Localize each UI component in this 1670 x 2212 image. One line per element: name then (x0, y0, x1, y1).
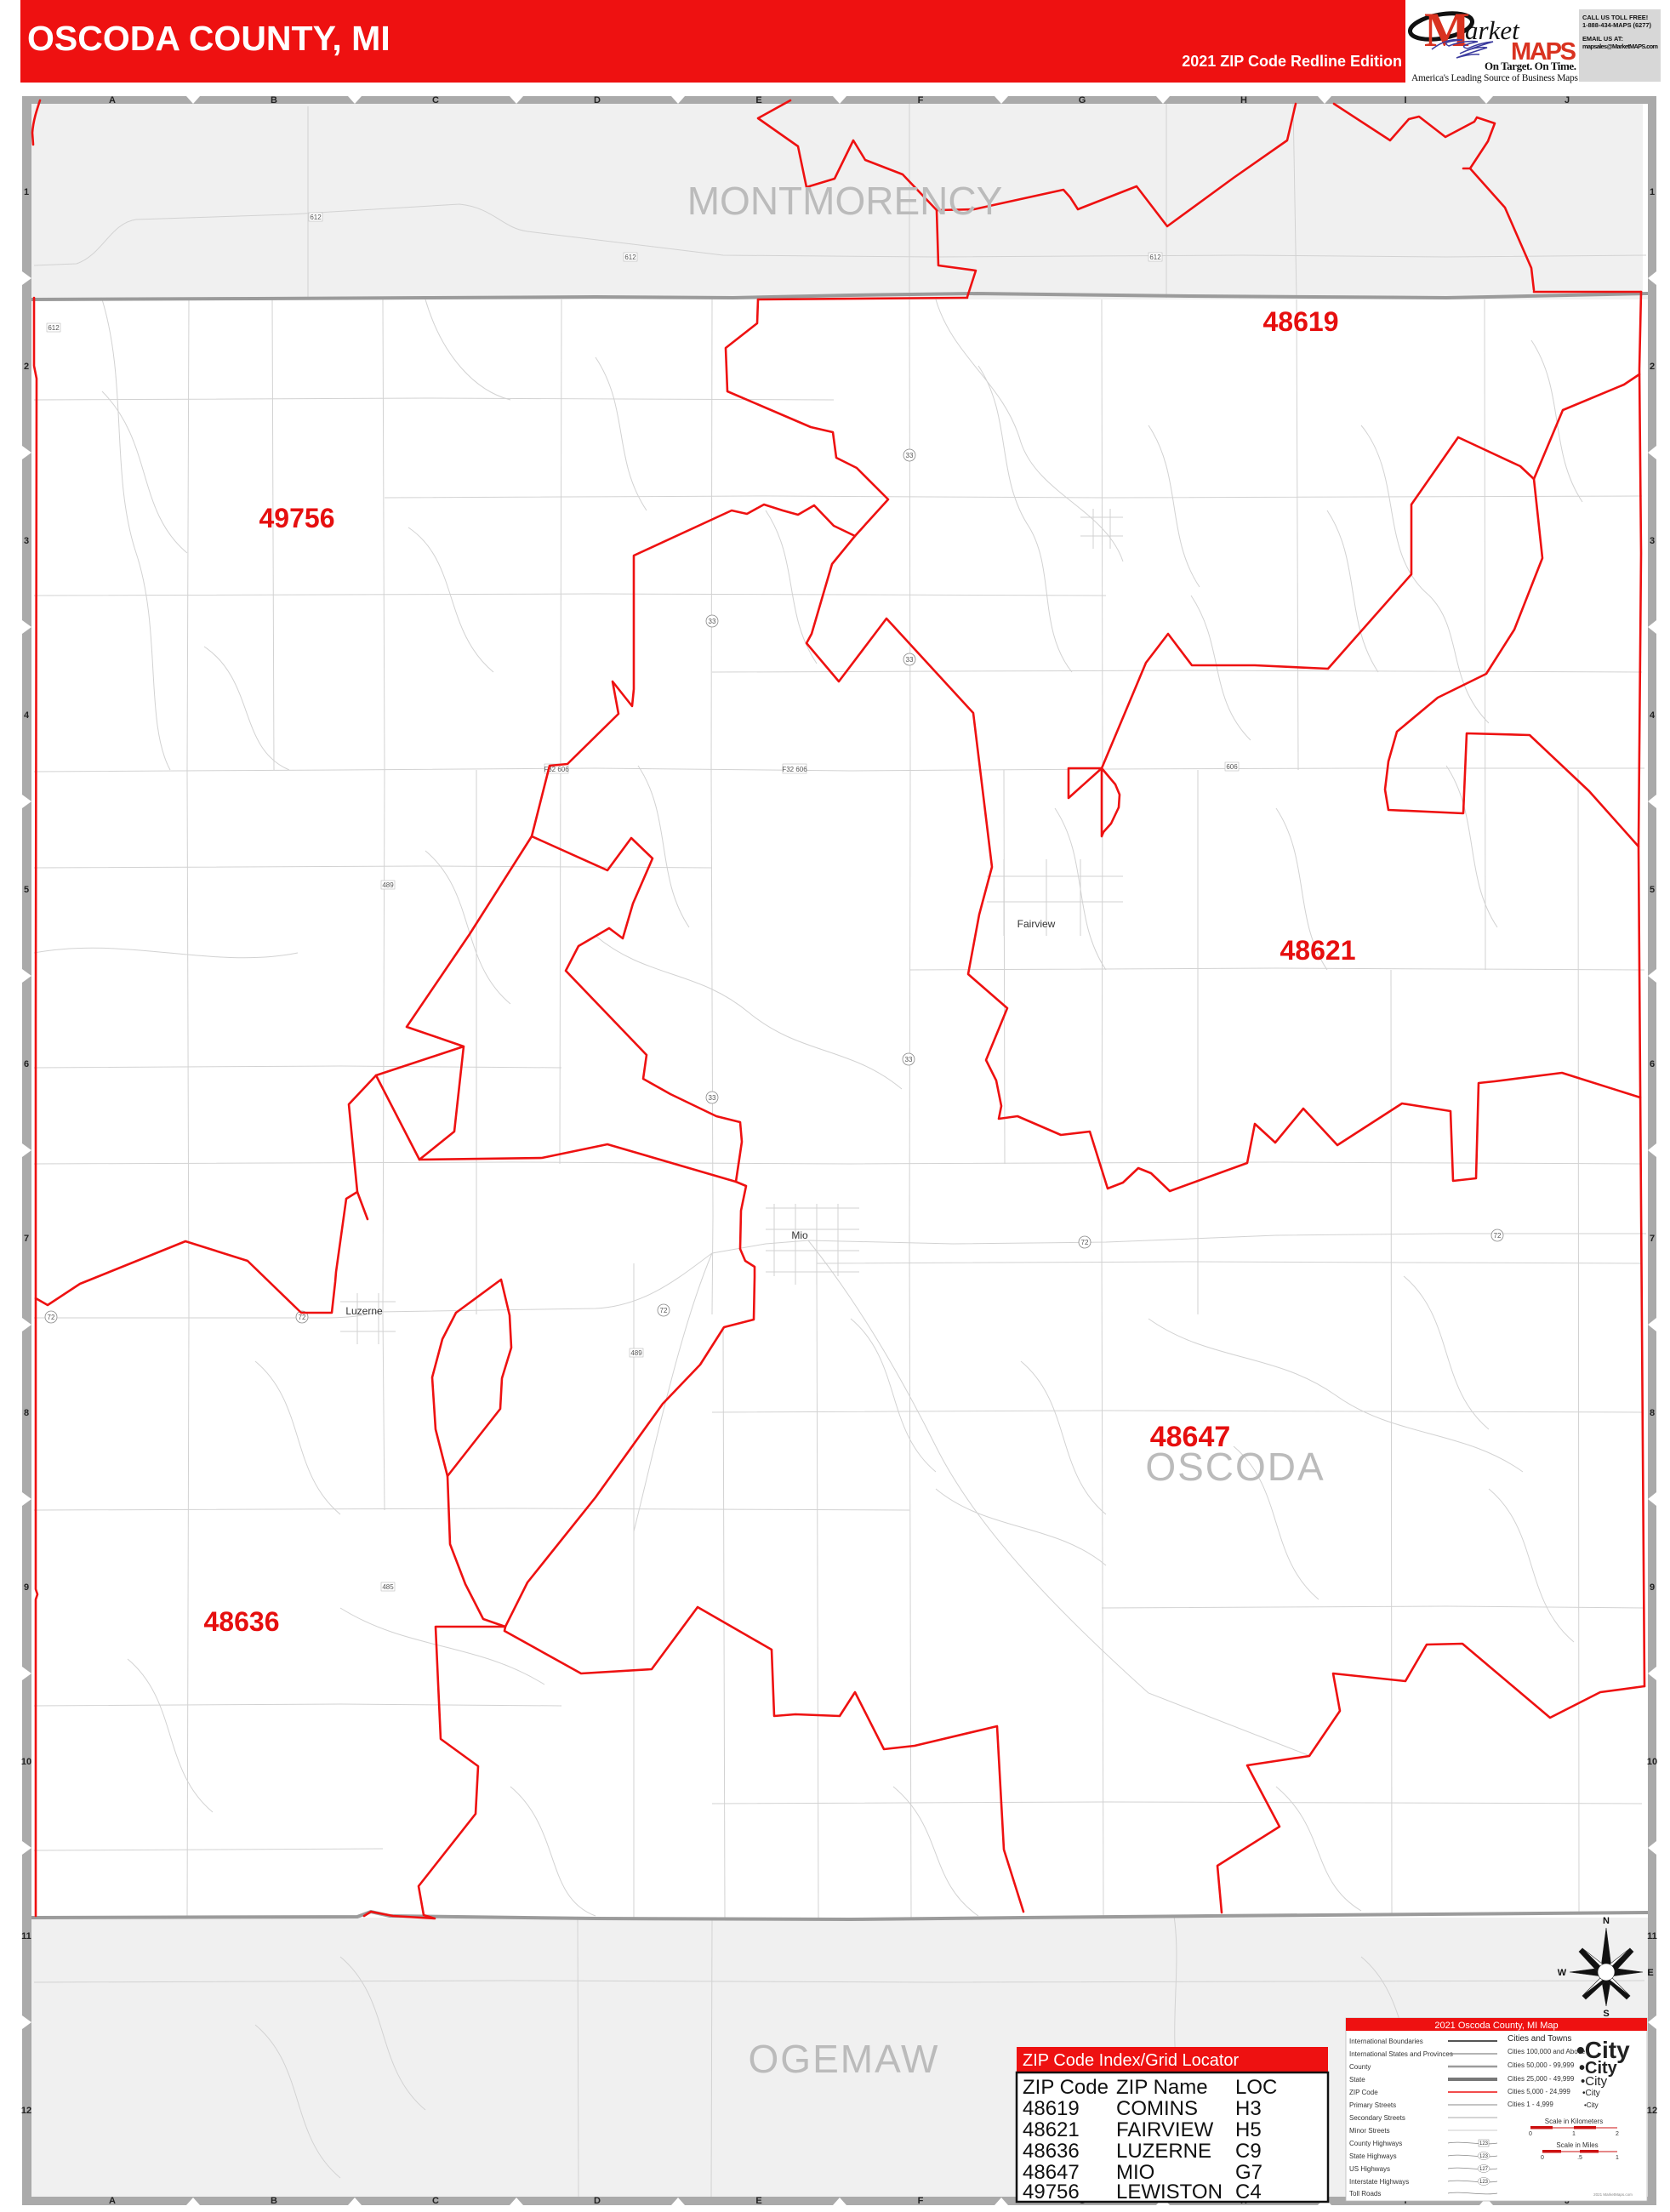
svg-text:2: 2 (1616, 2131, 1619, 2137)
svg-text:Toll Roads: Toll Roads (1349, 2190, 1381, 2198)
svg-text:489: 489 (382, 881, 394, 889)
svg-text:5: 5 (24, 885, 29, 895)
svg-text:A: A (109, 95, 116, 105)
svg-text:1: 1 (1650, 187, 1655, 197)
svg-text:2: 2 (24, 362, 29, 372)
svg-text:F: F (918, 95, 924, 105)
svg-text:11: 11 (21, 1931, 31, 1941)
svg-text:606: 606 (1226, 763, 1238, 771)
svg-text:N: N (1603, 1916, 1610, 1926)
svg-text:49756: 49756 (259, 503, 335, 533)
svg-text:C: C (432, 2196, 439, 2206)
svg-text:H: H (1240, 95, 1247, 105)
svg-text:COMINS: COMINS (1116, 2097, 1198, 2120)
svg-text:E: E (755, 2196, 761, 2206)
svg-text:LEWISTON: LEWISTON (1116, 2181, 1223, 2203)
svg-text:America's Leading Source of B: America's Leading Source of Business Map… (1411, 73, 1579, 83)
svg-text:Interstate Highways: Interstate Highways (1349, 2178, 1409, 2186)
svg-text:72: 72 (299, 1314, 306, 1321)
svg-text:9: 9 (1650, 1582, 1655, 1593)
svg-text:ZIP Code Index/Grid Locator: ZIP Code Index/Grid Locator (1023, 2051, 1240, 2070)
svg-text:Cities 50,000 - 99,999: Cities 50,000 - 99,999 (1508, 2061, 1575, 2069)
svg-text:Secondary Streets: Secondary Streets (1349, 2114, 1405, 2122)
svg-text:6: 6 (1650, 1059, 1655, 1069)
svg-text:5: 5 (1650, 885, 1655, 895)
svg-text:Cities 1 - 4,999: Cities 1 - 4,999 (1508, 2101, 1553, 2108)
svg-text:C9: C9 (1235, 2140, 1262, 2163)
svg-text:ZIP Code: ZIP Code (1349, 2089, 1378, 2096)
svg-text:33: 33 (905, 1056, 913, 1063)
svg-text:48619: 48619 (1263, 306, 1339, 337)
svg-text:2021 ZIP Code Redline Edition: 2021 ZIP Code Redline Edition (1182, 53, 1402, 70)
svg-text:48621: 48621 (1280, 935, 1356, 966)
svg-text:Mio: Mio (791, 1229, 808, 1241)
svg-text:8: 8 (1650, 1408, 1655, 1418)
svg-text:LOC: LOC (1235, 2076, 1277, 2099)
svg-text:•City: •City (1584, 2101, 1599, 2109)
svg-text:123: 123 (1479, 2141, 1489, 2146)
svg-text:72: 72 (1081, 1239, 1089, 1246)
svg-text:Scale in Miles: Scale in Miles (1556, 2141, 1598, 2149)
svg-text:7: 7 (1650, 1234, 1655, 1244)
svg-text:mapsales@MarketMAPS.com: mapsales@MarketMAPS.com (1582, 43, 1658, 50)
svg-text:FAIRVIEW: FAIRVIEW (1116, 2118, 1214, 2141)
svg-text:International States and Provi: International States and Provinces (1349, 2050, 1453, 2058)
svg-text:127: 127 (1479, 2167, 1489, 2172)
svg-text:Fairview: Fairview (1017, 918, 1056, 930)
svg-text:County Highways: County Highways (1349, 2140, 1402, 2147)
svg-text:48636: 48636 (204, 1606, 280, 1637)
svg-text:County: County (1349, 2063, 1371, 2071)
svg-text:ZIP Code: ZIP Code (1023, 2076, 1109, 2099)
svg-text:9: 9 (24, 1582, 29, 1593)
svg-text:12: 12 (1647, 2106, 1657, 2116)
svg-text:W: W (1558, 1968, 1567, 1978)
svg-text:33: 33 (906, 656, 914, 664)
svg-text:Luzerne: Luzerne (345, 1305, 383, 1317)
svg-text:Cities 25,000 - 49,999: Cities 25,000 - 49,999 (1508, 2075, 1575, 2083)
svg-text:612: 612 (624, 254, 636, 261)
svg-text:C4: C4 (1235, 2181, 1262, 2203)
svg-text:G: G (1079, 95, 1086, 105)
svg-text:F: F (918, 2196, 924, 2206)
svg-text:D: D (594, 2196, 601, 2206)
svg-text:State Highways: State Highways (1349, 2152, 1397, 2160)
svg-text:72: 72 (48, 1314, 55, 1321)
svg-text:1-888-434-MAPS (6277): 1-888-434-MAPS (6277) (1582, 21, 1651, 29)
svg-text:10: 10 (21, 1757, 31, 1767)
svg-text:2: 2 (1650, 362, 1655, 372)
svg-text:489: 489 (630, 1349, 642, 1357)
svg-text:48636: 48636 (1023, 2140, 1080, 2163)
svg-text:OGEMAW: OGEMAW (749, 2037, 940, 2081)
svg-text:0: 0 (1529, 2131, 1532, 2137)
svg-text:1: 1 (24, 187, 29, 197)
svg-text:3: 3 (24, 536, 29, 546)
svg-text:OSCODA COUNTY, MI: OSCODA COUNTY, MI (27, 19, 390, 58)
svg-text:33: 33 (709, 618, 716, 625)
svg-text:11: 11 (1647, 1931, 1657, 1941)
svg-text:72: 72 (1494, 1232, 1502, 1240)
svg-text:US Highways: US Highways (1349, 2165, 1390, 2173)
svg-text:612: 612 (310, 214, 322, 221)
svg-text:612: 612 (48, 324, 60, 332)
svg-text:H3: H3 (1235, 2097, 1262, 2120)
svg-text:2021 Oscoda County, MI Map: 2021 Oscoda County, MI Map (1434, 2021, 1558, 2031)
svg-text:S: S (1603, 2009, 1609, 2019)
svg-text:Minor Streets: Minor Streets (1349, 2127, 1390, 2135)
svg-text:123: 123 (1479, 2154, 1489, 2159)
svg-text:J: J (1565, 95, 1570, 105)
svg-text:7: 7 (24, 1234, 29, 1244)
svg-text:Cities and Towns: Cities and Towns (1508, 2034, 1571, 2044)
svg-text:C: C (432, 95, 439, 105)
svg-text:33: 33 (906, 452, 914, 459)
svg-text:EMAIL US AT:: EMAIL US AT: (1582, 35, 1623, 43)
svg-text:MONTMORENCY: MONTMORENCY (687, 179, 1003, 223)
svg-text:M: M (1424, 3, 1470, 57)
svg-text:•City: •City (1582, 2089, 1600, 2098)
svg-text:10: 10 (1647, 1757, 1657, 1767)
svg-text:8: 8 (24, 1408, 29, 1418)
svg-text:F32 606: F32 606 (782, 766, 807, 773)
svg-text:B: B (271, 95, 277, 105)
svg-text:48619: 48619 (1023, 2097, 1080, 2120)
svg-text:•City: •City (1581, 2074, 1608, 2089)
svg-text:Scale in Kilometers: Scale in Kilometers (1545, 2118, 1603, 2125)
svg-text:4: 4 (24, 710, 30, 721)
svg-text:72: 72 (660, 1307, 668, 1314)
svg-text:612: 612 (1149, 254, 1161, 261)
svg-text:0: 0 (1541, 2155, 1544, 2161)
svg-text:1: 1 (1572, 2131, 1576, 2137)
svg-text:International Boundaries: International Boundaries (1349, 2038, 1423, 2045)
svg-text:33: 33 (709, 1094, 716, 1102)
svg-text:Cities 100,000 and Above: Cities 100,000 and Above (1508, 2048, 1586, 2055)
svg-text:I: I (1404, 95, 1406, 105)
svg-text:H5: H5 (1235, 2118, 1262, 2141)
svg-text:48621: 48621 (1023, 2118, 1080, 2141)
svg-text:2021 MarketMaps.com: 2021 MarketMaps.com (1593, 2192, 1633, 2197)
svg-text:ZIP Name: ZIP Name (1116, 2076, 1208, 2099)
svg-text:12: 12 (21, 2106, 31, 2116)
svg-text:B: B (271, 2196, 277, 2206)
svg-text:Cities 5,000 - 24,999: Cities 5,000 - 24,999 (1508, 2088, 1570, 2095)
svg-text:On Target. On Time.: On Target. On Time. (1485, 60, 1576, 72)
svg-text:D: D (594, 95, 601, 105)
svg-text:4: 4 (1650, 710, 1656, 721)
svg-text:48647: 48647 (1150, 1421, 1231, 1453)
svg-text:123: 123 (1479, 2180, 1489, 2185)
svg-text:485: 485 (382, 1583, 394, 1591)
svg-text:Primary Streets: Primary Streets (1349, 2101, 1396, 2109)
svg-text:State: State (1349, 2076, 1365, 2084)
svg-text:3: 3 (1650, 536, 1655, 546)
svg-text:LUZERNE: LUZERNE (1116, 2140, 1211, 2163)
svg-text:A: A (109, 2196, 116, 2206)
svg-text:49756: 49756 (1023, 2181, 1080, 2203)
svg-text:1: 1 (1616, 2155, 1619, 2161)
svg-text:E: E (755, 95, 761, 105)
svg-text:E: E (1647, 1968, 1653, 1978)
svg-text:CALL US TOLL FREE!: CALL US TOLL FREE! (1582, 14, 1648, 21)
svg-text:6: 6 (24, 1059, 29, 1069)
svg-text:.5: .5 (1577, 2155, 1582, 2161)
